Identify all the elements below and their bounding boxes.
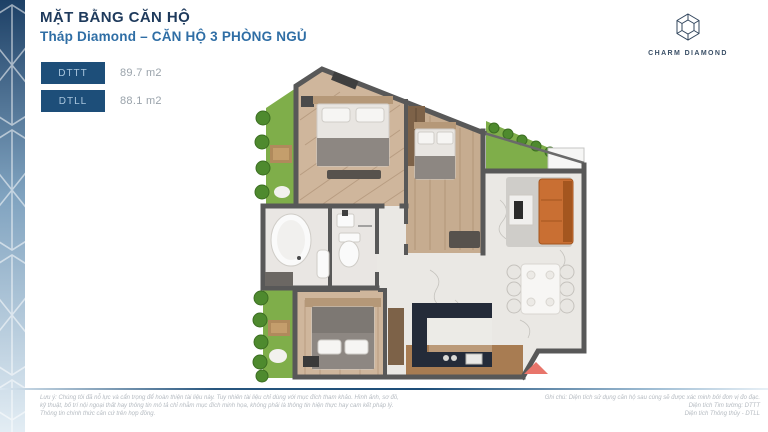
disclaimer-line: kỹ thuật, bố trí nội ngoại thất hay thôn… <box>40 402 440 410</box>
bedroom-3-furniture <box>303 298 381 369</box>
note-line: Diện tích Thông thủy - DTLL <box>460 410 760 418</box>
page: { "header": { "title": "MẶT BẰNG CĂN HỘ"… <box>0 0 768 432</box>
pedestal-sink <box>317 250 329 278</box>
appliance <box>466 354 482 364</box>
footer-note: Ghi chú: Diện tích sử dụng căn hộ sau cù… <box>460 394 760 418</box>
area-code-badge: DTTT <box>41 62 105 84</box>
toilet-bowl <box>339 241 359 267</box>
area-row-dtll: DTLL 88.1 m2 <box>41 90 162 112</box>
tv-icon <box>514 201 523 219</box>
nightstand <box>301 96 314 107</box>
note-line: Ghi chú: Diện tích sử dụng căn hộ sau cù… <box>460 394 760 402</box>
living-room-furniture <box>506 177 573 247</box>
note-line: Diện tích Tim tường: DTTT <box>460 402 760 410</box>
tub-ledge <box>265 272 293 286</box>
bench <box>449 231 480 248</box>
dining-set <box>507 264 574 314</box>
footer-disclaimer: Lưu ý: Chúng tôi đã nỗ lực và cẩn trọng … <box>40 394 440 418</box>
ledge <box>548 148 584 170</box>
area-table: DTTT 89.7 m2 DTLL 88.1 m2 <box>41 62 162 118</box>
header: MẶT BẰNG CĂN HỘ Tháp Diamond – CĂN HỘ 3 … <box>40 9 307 44</box>
floor-plan <box>240 55 620 395</box>
ac-unit-icon <box>303 356 319 367</box>
page-title: MẶT BẰNG CĂN HỘ <box>40 9 307 26</box>
fridge-cabinet <box>388 308 404 365</box>
footer-divider <box>0 388 768 390</box>
logo-text: CHARM DIAMOND <box>638 50 738 57</box>
page-subtitle: Tháp Diamond – CĂN HỘ 3 PHÒNG NGỦ <box>40 29 307 44</box>
area-code-badge: DTLL <box>41 90 105 112</box>
diamond-hexagon-icon <box>673 12 703 42</box>
area-value: 89.7 m2 <box>120 67 162 79</box>
disclaimer-line: Lưu ý: Chúng tôi đã nỗ lực và cẩn trọng … <box>40 394 440 402</box>
charm-diamond-logo: CHARM DIAMOND <box>638 12 738 57</box>
area-value: 88.1 m2 <box>120 95 162 107</box>
balcony-garden-left-bottom <box>253 290 295 382</box>
balcony-garden-left-top <box>255 88 296 206</box>
dining-table <box>521 264 560 314</box>
disclaimer-line: Thông tin chính thức căn cứ trên hợp đồn… <box>40 410 440 418</box>
area-row-dttt: DTTT 89.7 m2 <box>41 62 162 84</box>
decorative-side-strip <box>0 0 25 432</box>
kitchen <box>388 303 492 367</box>
